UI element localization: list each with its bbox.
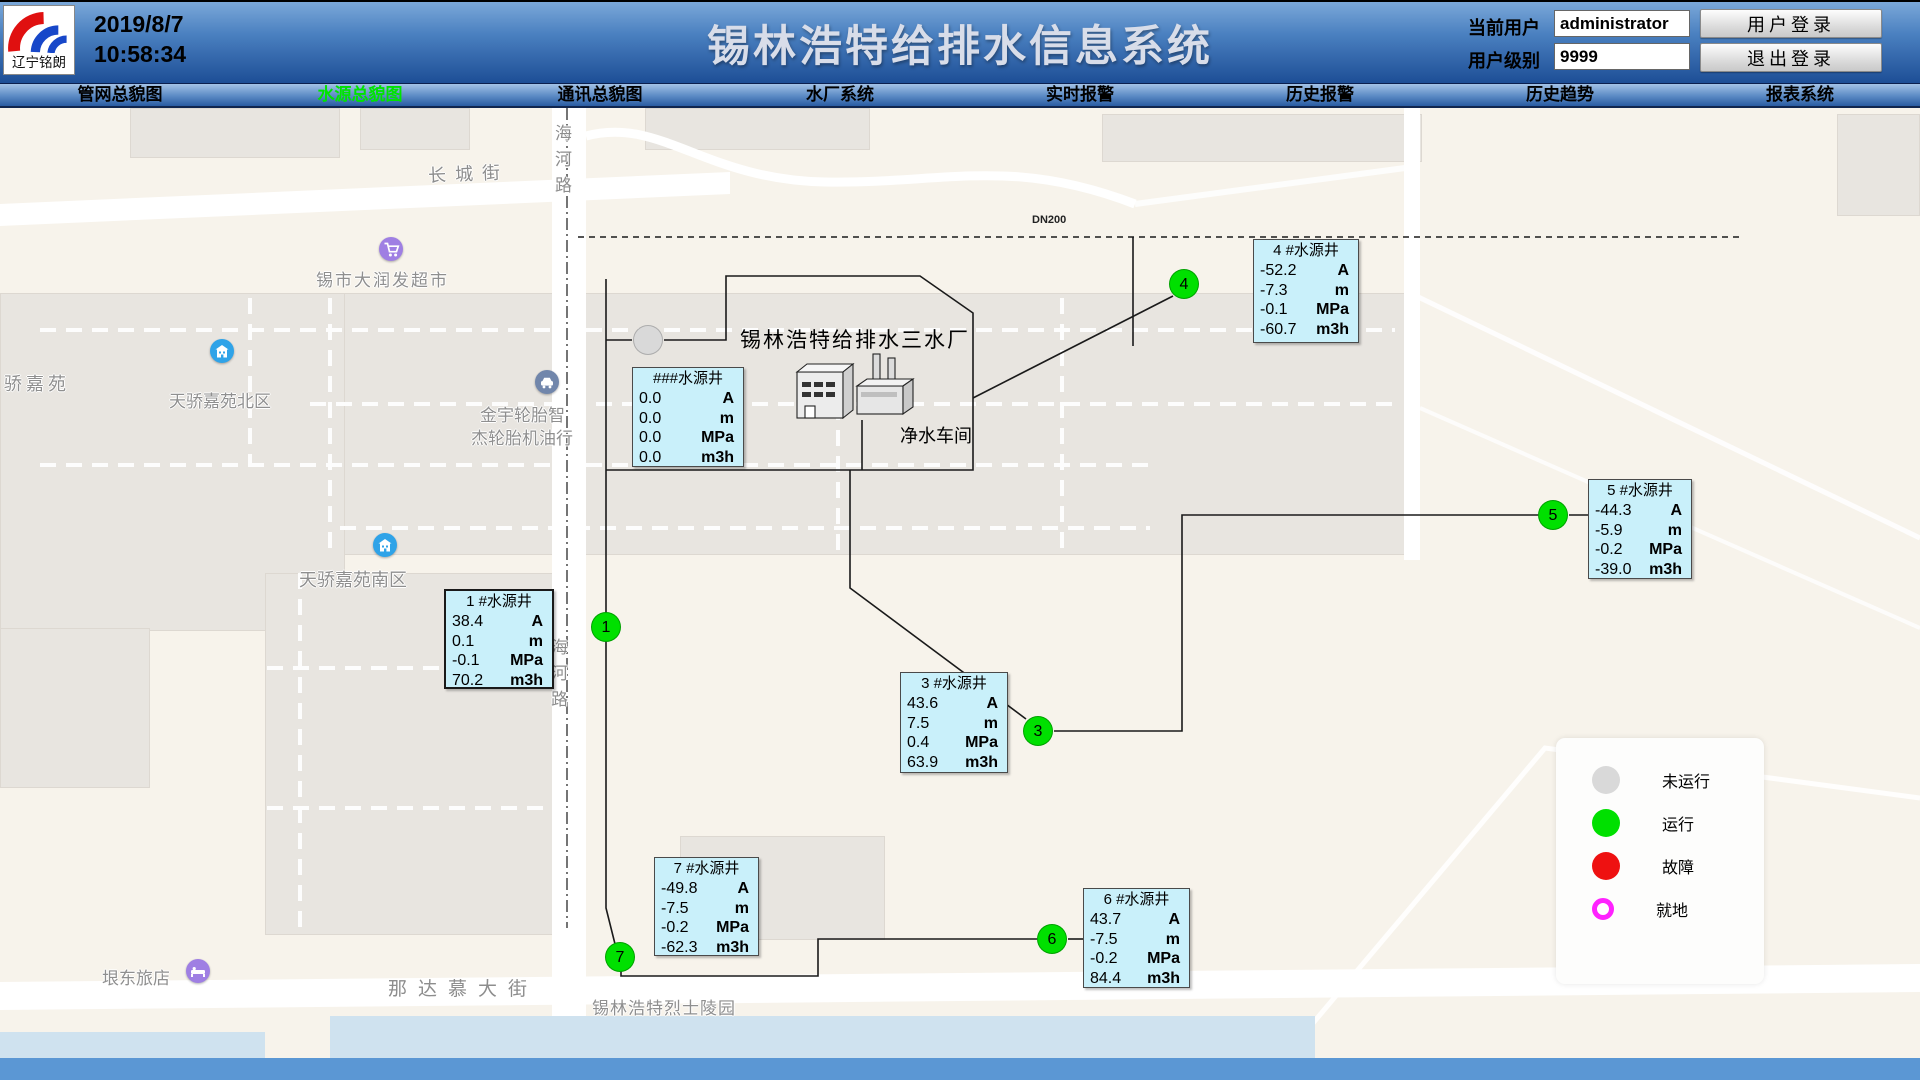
pressure-value: -0.1 — [1260, 300, 1288, 320]
poi-label-tianjiao-north: 天骄嘉苑北区 — [169, 387, 271, 412]
well-title: 1 #水源井 — [446, 591, 552, 612]
tab-history-alarms[interactable]: 历史报警 — [1200, 84, 1440, 106]
legend-label: 未运行 — [1662, 768, 1710, 792]
well-title: ###水源井 — [633, 368, 743, 389]
well-title: 5 #水源井 — [1589, 480, 1691, 501]
level-unit: m — [1166, 930, 1180, 950]
legend-label: 就地 — [1656, 897, 1688, 921]
tab-realtime-alarms[interactable]: 实时报警 — [960, 84, 1200, 106]
current-value: -44.3 — [1595, 501, 1631, 521]
pressure-value: -0.1 — [452, 651, 480, 671]
datetime: 2019/8/7 10:58:34 — [94, 9, 186, 69]
poi-label-hotel: 垠东旅店 — [102, 964, 170, 989]
company-logo: 辽宁铭朗 — [3, 5, 75, 75]
level-value: -7.5 — [661, 899, 689, 919]
plant-title: 锡林浩特给排水三水厂 — [740, 324, 970, 354]
flow-unit: m3h — [965, 753, 998, 773]
legend-item-running: 运行 — [1556, 801, 1764, 844]
level-unit: m — [984, 714, 998, 734]
building-icon — [210, 339, 234, 363]
flow-value: -62.3 — [661, 938, 697, 958]
logo-text: 辽宁铭朗 — [4, 51, 74, 71]
well-title: 6 #水源井 — [1084, 889, 1189, 910]
pressure-value: -0.2 — [1090, 949, 1118, 969]
level-value: 0.0 — [639, 409, 661, 429]
flow-unit: m3h — [1316, 320, 1349, 340]
car-icon — [535, 370, 559, 394]
tab-pipe-network-overview[interactable]: 管网总貌图 — [0, 84, 240, 106]
logo-arcs-icon — [6, 7, 72, 53]
level-value: -5.9 — [1595, 521, 1623, 541]
level-value: 7.5 — [907, 714, 929, 734]
current-value: 43.6 — [907, 694, 938, 714]
pressure-unit: MPa — [510, 651, 543, 671]
well-data-box-5: 5 #水源井 -44.3A -5.9m -0.2MPa -39.0m3h — [1588, 479, 1692, 579]
well-title: 4 #水源井 — [1254, 240, 1358, 261]
tab-communication-overview[interactable]: 通讯总貌图 — [480, 84, 720, 106]
legend-item-local: 就地 — [1556, 887, 1764, 930]
well-marker-6[interactable]: 6 — [1037, 924, 1067, 954]
flow-unit: m3h — [701, 448, 734, 468]
well-marker-4[interactable]: 4 — [1169, 269, 1199, 299]
header: 辽宁铭朗 2019/8/7 10:58:34 锡林浩特给排水信息系统 当前用户 … — [0, 0, 1920, 83]
poi-label-supermarket: 锡市大润发超市 — [316, 266, 449, 291]
current-unit: A — [737, 879, 749, 899]
date-text: 2019/8/7 — [94, 9, 186, 39]
bed-icon — [186, 959, 210, 983]
level-value: -7.5 — [1090, 930, 1118, 950]
current-unit: A — [531, 612, 543, 632]
level-unit: m — [529, 632, 543, 652]
flow-unit: m3h — [1649, 560, 1682, 580]
map-area[interactable]: 长城街 那达慕大街 海河路 海河路 锡市大润发超市 天骄嘉苑 天骄嘉苑北区 金宇… — [0, 108, 1920, 1080]
pressure-unit: MPa — [1147, 949, 1180, 969]
poi-label-martyrs-cemetery: 锡林浩特烈士陵园 — [592, 994, 736, 1019]
pressure-unit: MPa — [1649, 540, 1682, 560]
poi-label-tire-shop-line2: 杰轮胎机油行 — [471, 424, 573, 449]
well-data-box-3: 3 #水源井 43.6A 7.5m 0.4MPa 63.9m3h — [900, 672, 1008, 773]
flow-value: -39.0 — [1595, 560, 1631, 580]
pressure-value: -0.2 — [661, 918, 689, 938]
well-data-box-1: 1 #水源井 38.4A 0.1m -0.1MPa 70.2m3h — [444, 589, 554, 689]
status-legend: 未运行 运行 故障 就地 — [1556, 738, 1764, 984]
current-unit: A — [722, 389, 734, 409]
well-title: 7 #水源井 — [655, 858, 758, 879]
tab-history-trends[interactable]: 历史趋势 — [1440, 84, 1680, 106]
current-unit: A — [1670, 501, 1682, 521]
poi-label-tianjiao-south: 天骄嘉苑南区 — [299, 566, 407, 592]
flow-unit: m3h — [716, 938, 749, 958]
current-value: 43.7 — [1090, 910, 1121, 930]
pressure-value: 0.4 — [907, 733, 929, 753]
current-value: -52.2 — [1260, 261, 1296, 281]
logout-button[interactable]: 退出登录 — [1700, 43, 1882, 72]
level-unit: m — [735, 899, 749, 919]
cart-icon — [379, 237, 403, 261]
current-value: 0.0 — [639, 389, 661, 409]
pressure-unit: MPa — [1316, 300, 1349, 320]
flow-unit: m3h — [1147, 969, 1180, 989]
building-icon — [373, 533, 397, 557]
page-title: 锡林浩特给排水信息系统 — [707, 12, 1213, 74]
legend-item-not-running: 未运行 — [1556, 758, 1764, 801]
login-button[interactable]: 用户登录 — [1700, 9, 1882, 38]
well-data-box-6: 6 #水源井 43.7A -7.5m -0.2MPa 84.4m3h — [1083, 888, 1190, 988]
flow-value: 70.2 — [452, 671, 483, 691]
well-title: 3 #水源井 — [901, 673, 1007, 694]
water-layer — [0, 1016, 1920, 1080]
well-marker-plant[interactable] — [633, 325, 663, 355]
flow-unit: m3h — [510, 671, 543, 691]
street-label-nadamu: 那达慕大街 — [388, 974, 538, 1001]
current-user-label: 当前用户 — [1468, 14, 1540, 40]
flow-value: 0.0 — [639, 448, 661, 468]
running-dot-icon — [1592, 809, 1620, 837]
legend-label: 故障 — [1662, 854, 1694, 878]
pipe-diameter-label: DN200 — [1032, 214, 1066, 226]
current-unit: A — [1168, 910, 1180, 930]
level-unit: m — [720, 409, 734, 429]
well-marker-5[interactable]: 5 — [1538, 500, 1568, 530]
tab-report-system[interactable]: 报表系统 — [1680, 84, 1920, 106]
pressure-unit: MPa — [965, 733, 998, 753]
scada-window: 辽宁铭朗 2019/8/7 10:58:34 锡林浩特给排水信息系统 当前用户 … — [0, 0, 1920, 1080]
pressure-value: 0.0 — [639, 428, 661, 448]
well-data-box-plant: ###水源井 0.0A 0.0m 0.0MPa 0.0m3h — [632, 367, 744, 467]
flow-value: 63.9 — [907, 753, 938, 773]
tab-water-plant-system[interactable]: 水厂系统 — [720, 84, 960, 106]
legend-label: 运行 — [1662, 811, 1694, 835]
current-unit: A — [1337, 261, 1349, 281]
fault-dot-icon — [1592, 852, 1620, 880]
well-marker-3[interactable]: 3 — [1023, 716, 1053, 746]
level-unit: m — [1335, 281, 1349, 301]
local-ring-icon — [1592, 898, 1614, 920]
user-level-field[interactable] — [1554, 43, 1690, 70]
pressure-unit: MPa — [716, 918, 749, 938]
user-level-label: 用户级别 — [1468, 47, 1540, 73]
street-label-haihe-north: 海河路 — [549, 124, 574, 202]
not-running-dot-icon — [1592, 766, 1620, 794]
well-data-box-4: 4 #水源井 -52.2A -7.3m -0.1MPa -60.7m3h — [1253, 239, 1359, 343]
current-unit: A — [986, 694, 998, 714]
well-data-box-7: 7 #水源井 -49.8A -7.5m -0.2MPa -62.3m3h — [654, 857, 759, 956]
level-unit: m — [1668, 521, 1682, 541]
legend-item-fault: 故障 — [1556, 844, 1764, 887]
main-nav: 管网总貌图 水源总貌图 通讯总貌图 水厂系统 实时报警 历史报警 历史趋势 报表… — [0, 83, 1920, 108]
pressure-value: -0.2 — [1595, 540, 1623, 560]
level-value: -7.3 — [1260, 281, 1288, 301]
street-label-changcheng: 长城街 — [427, 158, 509, 188]
flow-value: -60.7 — [1260, 320, 1296, 340]
current-value: 38.4 — [452, 612, 483, 632]
factory-icon — [795, 352, 915, 427]
well-marker-7[interactable]: 7 — [605, 942, 635, 972]
poi-label-tianjiao: 天骄嘉苑 — [0, 370, 70, 396]
tab-water-source-overview[interactable]: 水源总貌图 — [240, 84, 480, 106]
current-value: -49.8 — [661, 879, 697, 899]
well-marker-1[interactable]: 1 — [591, 612, 621, 642]
level-value: 0.1 — [452, 632, 474, 652]
poi-label-tire-shop-line1: 金宇轮胎智 — [480, 401, 565, 426]
current-user-field[interactable] — [1554, 10, 1690, 37]
time-text: 10:58:34 — [94, 39, 186, 69]
workshop-label: 净水车间 — [900, 422, 972, 448]
pressure-unit: MPa — [701, 428, 734, 448]
flow-value: 84.4 — [1090, 969, 1121, 989]
